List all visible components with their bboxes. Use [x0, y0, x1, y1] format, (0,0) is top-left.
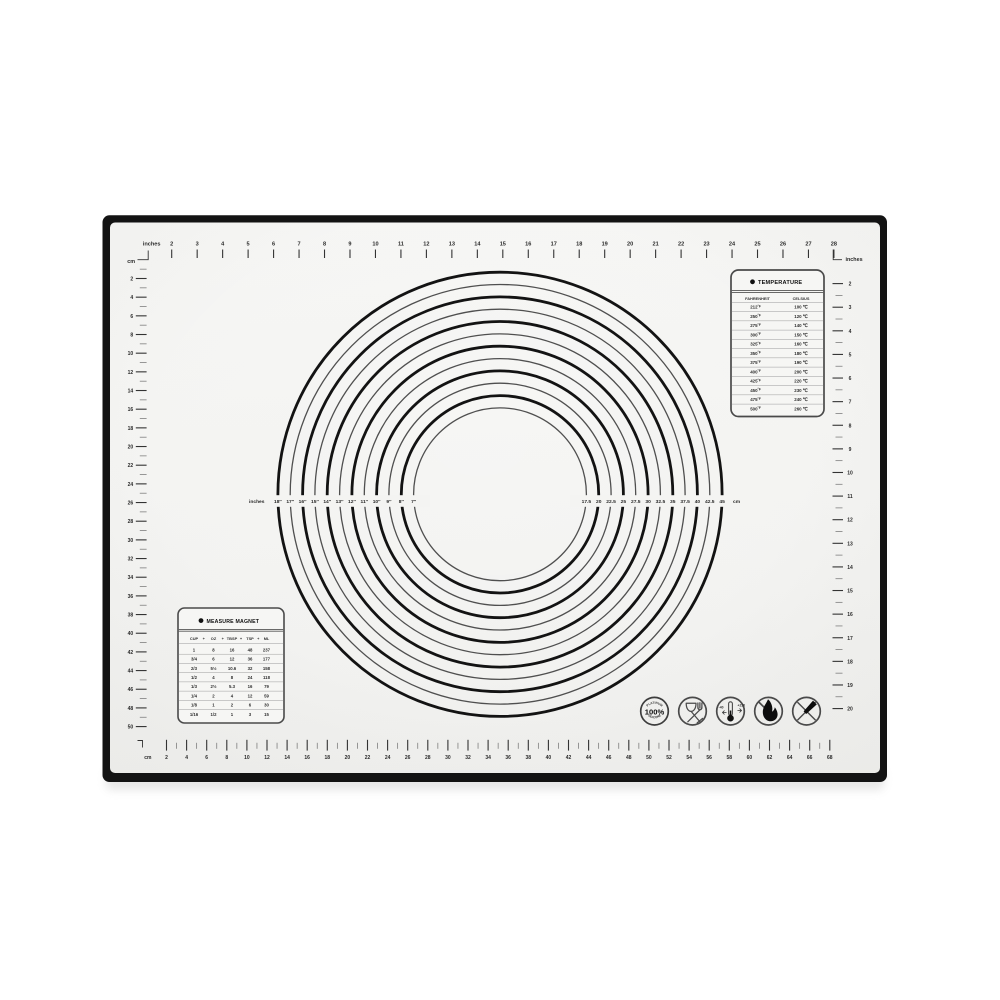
svg-text:140 ℃: 140 ℃ — [794, 323, 808, 328]
svg-text:46: 46 — [128, 687, 134, 693]
svg-text:OZ: OZ — [211, 636, 217, 641]
svg-text:36: 36 — [505, 755, 511, 761]
svg-text:180 ℃: 180 ℃ — [794, 351, 808, 356]
svg-text:177: 177 — [263, 657, 271, 662]
svg-text:cm: cm — [733, 500, 741, 505]
svg-text:10: 10 — [847, 470, 853, 476]
svg-text:5: 5 — [247, 242, 250, 248]
svg-text:19: 19 — [847, 683, 853, 689]
svg-text:6: 6 — [130, 314, 133, 320]
svg-text:1/2: 1/2 — [191, 675, 198, 680]
svg-text:50: 50 — [646, 755, 652, 761]
svg-text:16: 16 — [304, 755, 310, 761]
svg-text:24: 24 — [248, 675, 253, 680]
svg-text:11: 11 — [398, 242, 404, 248]
svg-text:12: 12 — [423, 242, 429, 248]
svg-text:16: 16 — [230, 647, 235, 652]
svg-text:26: 26 — [405, 755, 411, 761]
svg-text:1/3: 1/3 — [191, 684, 198, 689]
svg-text:25: 25 — [754, 242, 760, 248]
svg-text:260 ℃: 260 ℃ — [794, 406, 808, 411]
svg-text:cm: cm — [127, 259, 135, 265]
svg-text:10″: 10″ — [373, 499, 381, 505]
svg-text:23: 23 — [703, 242, 709, 248]
svg-text:8: 8 — [225, 755, 228, 761]
svg-text:15″: 15″ — [311, 499, 319, 505]
svg-text:160 ℃: 160 ℃ — [794, 342, 808, 347]
svg-text:14: 14 — [284, 755, 290, 761]
svg-text:40: 40 — [695, 499, 701, 505]
svg-text:2⅔: 2⅔ — [211, 684, 217, 689]
svg-text:12: 12 — [248, 693, 253, 698]
svg-text:13: 13 — [847, 541, 853, 547]
svg-text:20: 20 — [627, 242, 633, 248]
svg-text:38: 38 — [128, 613, 134, 619]
svg-text:62: 62 — [767, 755, 773, 761]
svg-text:118: 118 — [263, 675, 271, 680]
svg-text:22.5: 22.5 — [606, 499, 616, 505]
svg-text:100%: 100% — [645, 708, 665, 717]
svg-text:ML: ML — [264, 636, 270, 641]
svg-text:240 ℃: 240 ℃ — [794, 397, 808, 402]
svg-text:3/4: 3/4 — [191, 657, 198, 662]
svg-text:10: 10 — [128, 351, 134, 357]
svg-text:200 ℃: 200 ℃ — [794, 369, 808, 374]
svg-text:16: 16 — [525, 242, 531, 248]
svg-text:17: 17 — [551, 242, 557, 248]
svg-text:34: 34 — [485, 755, 491, 761]
svg-text:9: 9 — [348, 242, 351, 248]
svg-text:56: 56 — [706, 755, 712, 761]
svg-text:5⅓: 5⅓ — [211, 666, 217, 671]
svg-text:16: 16 — [128, 407, 134, 413]
svg-text:60: 60 — [747, 755, 753, 761]
svg-text:9″: 9″ — [386, 499, 392, 505]
svg-text:4: 4 — [849, 329, 852, 335]
svg-text:40: 40 — [546, 755, 552, 761]
svg-text:24: 24 — [128, 482, 134, 488]
svg-text:24: 24 — [729, 242, 736, 248]
svg-text:12: 12 — [264, 755, 270, 761]
svg-text:14: 14 — [847, 565, 853, 571]
svg-text:22: 22 — [128, 463, 134, 469]
svg-text:52: 52 — [666, 755, 672, 761]
svg-text:44: 44 — [128, 669, 134, 675]
svg-text:20: 20 — [128, 445, 134, 451]
svg-text:18: 18 — [847, 659, 853, 665]
svg-text:30: 30 — [645, 499, 651, 505]
svg-text:6: 6 — [849, 376, 852, 382]
svg-text:54: 54 — [686, 755, 692, 761]
svg-text:22: 22 — [678, 242, 684, 248]
svg-text:6: 6 — [205, 755, 208, 761]
svg-text:34: 34 — [128, 575, 134, 581]
svg-text:48: 48 — [128, 706, 134, 712]
svg-text:-40: -40 — [719, 705, 724, 709]
svg-text:3: 3 — [196, 242, 199, 248]
svg-text:30: 30 — [128, 538, 134, 544]
svg-text:inches: inches — [846, 257, 863, 263]
svg-text:21: 21 — [653, 242, 659, 248]
svg-text:237: 237 — [263, 647, 271, 652]
svg-text:32: 32 — [465, 755, 471, 761]
svg-text:1/16: 1/16 — [190, 712, 199, 717]
svg-text:20: 20 — [345, 755, 351, 761]
svg-text:28: 28 — [425, 755, 431, 761]
svg-text:38: 38 — [526, 755, 532, 761]
svg-text:37.5: 37.5 — [680, 499, 690, 505]
svg-text:27.5: 27.5 — [631, 499, 641, 505]
svg-text:27: 27 — [805, 242, 811, 248]
svg-text:32.5: 32.5 — [656, 499, 666, 505]
svg-text:2: 2 — [130, 277, 133, 283]
svg-text:158: 158 — [263, 666, 271, 671]
svg-text:FAHRENHEIT: FAHRENHEIT — [745, 296, 770, 301]
svg-text:8″: 8″ — [399, 499, 405, 505]
svg-text:20: 20 — [847, 707, 853, 713]
svg-text:32: 32 — [128, 557, 134, 563]
svg-text:14″: 14″ — [323, 499, 331, 505]
svg-text:12: 12 — [847, 518, 853, 524]
svg-text:11″: 11″ — [361, 499, 369, 505]
svg-text:36: 36 — [248, 657, 253, 662]
svg-text:40: 40 — [128, 631, 134, 637]
svg-text:13″: 13″ — [336, 499, 344, 505]
svg-text:66: 66 — [807, 755, 813, 761]
svg-text:10.6: 10.6 — [228, 666, 237, 671]
svg-text:+230: +230 — [738, 703, 746, 707]
svg-text:2: 2 — [170, 242, 173, 248]
svg-text:12: 12 — [128, 370, 134, 376]
svg-text:45: 45 — [719, 499, 725, 505]
svg-text:12: 12 — [230, 657, 235, 662]
svg-text:8: 8 — [130, 333, 133, 339]
svg-text:5.3: 5.3 — [229, 684, 236, 689]
svg-text:17″: 17″ — [286, 499, 294, 505]
svg-text:64: 64 — [787, 755, 793, 761]
svg-text:8: 8 — [323, 242, 326, 248]
svg-text:28: 28 — [831, 242, 837, 248]
svg-text:42: 42 — [566, 755, 572, 761]
svg-text:7: 7 — [297, 242, 300, 248]
svg-text:5: 5 — [849, 352, 852, 358]
svg-text:50: 50 — [128, 725, 134, 731]
svg-text:48: 48 — [626, 755, 632, 761]
svg-text:17: 17 — [847, 636, 853, 642]
svg-text:48: 48 — [248, 647, 253, 652]
svg-text:42: 42 — [128, 650, 134, 656]
svg-text:30: 30 — [264, 703, 269, 708]
svg-text:26: 26 — [128, 501, 134, 507]
svg-text:4: 4 — [185, 755, 188, 761]
svg-text:1/2: 1/2 — [211, 712, 218, 717]
svg-text:1/4: 1/4 — [191, 693, 198, 698]
svg-text:TSP: TSP — [246, 636, 254, 641]
svg-text:150 ℃: 150 ℃ — [794, 332, 808, 337]
svg-text:4: 4 — [130, 295, 133, 301]
svg-text:2: 2 — [849, 282, 852, 288]
svg-text:59: 59 — [264, 693, 269, 698]
svg-text:190 ℃: 190 ℃ — [794, 360, 808, 365]
svg-text:9: 9 — [849, 447, 852, 453]
svg-text:7: 7 — [849, 400, 852, 406]
svg-text:120 ℃: 120 ℃ — [794, 314, 808, 319]
svg-text:100 ℃: 100 ℃ — [794, 305, 808, 310]
svg-text:6: 6 — [272, 242, 275, 248]
svg-text:44: 44 — [586, 755, 592, 761]
svg-text:18: 18 — [325, 755, 331, 761]
svg-text:30: 30 — [445, 755, 451, 761]
svg-text:2: 2 — [165, 755, 168, 761]
svg-text:8: 8 — [849, 423, 852, 429]
svg-text:7″: 7″ — [411, 499, 417, 505]
svg-text:79: 79 — [264, 684, 269, 689]
svg-text:42.5: 42.5 — [705, 499, 715, 505]
svg-text:32: 32 — [248, 666, 253, 671]
svg-text:13: 13 — [449, 242, 455, 248]
svg-text:68: 68 — [827, 755, 833, 761]
svg-text:22: 22 — [365, 755, 371, 761]
svg-text:16: 16 — [248, 684, 253, 689]
svg-text:25: 25 — [621, 499, 627, 505]
svg-text:inches: inches — [143, 242, 161, 248]
svg-text:20: 20 — [596, 499, 602, 505]
svg-text:58: 58 — [727, 755, 733, 761]
svg-text:16: 16 — [847, 612, 853, 618]
svg-text:10: 10 — [372, 242, 378, 248]
svg-text:CELSIUS: CELSIUS — [793, 296, 810, 301]
svg-text:19: 19 — [602, 242, 608, 248]
svg-text:46: 46 — [606, 755, 612, 761]
svg-text:18″: 18″ — [274, 499, 282, 505]
svg-text:14: 14 — [128, 389, 134, 395]
svg-text:2/3: 2/3 — [191, 666, 198, 671]
svg-text:10: 10 — [244, 755, 250, 761]
svg-text:TEMPERATURE: TEMPERATURE — [758, 280, 802, 286]
svg-text:15: 15 — [264, 712, 269, 717]
svg-text:28: 28 — [128, 519, 134, 525]
svg-text:11: 11 — [847, 494, 853, 500]
svg-text:26: 26 — [780, 242, 786, 248]
svg-text:220 ℃: 220 ℃ — [794, 379, 808, 384]
svg-text:35: 35 — [670, 499, 676, 505]
svg-text:14: 14 — [474, 242, 481, 248]
svg-text:18: 18 — [576, 242, 582, 248]
svg-text:15: 15 — [500, 242, 506, 248]
svg-text:16″: 16″ — [299, 499, 307, 505]
svg-text:1/8: 1/8 — [191, 703, 198, 708]
svg-text:inches: inches — [249, 499, 265, 505]
svg-text:24: 24 — [385, 755, 391, 761]
svg-text:cm: cm — [144, 755, 152, 761]
svg-text:CUP: CUP — [190, 636, 199, 641]
svg-text:3: 3 — [849, 305, 852, 311]
svg-text:12″: 12″ — [348, 499, 356, 505]
svg-text:17.5: 17.5 — [582, 499, 592, 505]
svg-text:18: 18 — [128, 426, 134, 432]
svg-text:36: 36 — [128, 594, 134, 600]
svg-text:230 ℃: 230 ℃ — [794, 388, 808, 393]
svg-text:TBSP: TBSP — [227, 636, 238, 641]
svg-text:MEASURE MAGNET: MEASURE MAGNET — [207, 619, 260, 625]
svg-text:15: 15 — [847, 589, 853, 595]
